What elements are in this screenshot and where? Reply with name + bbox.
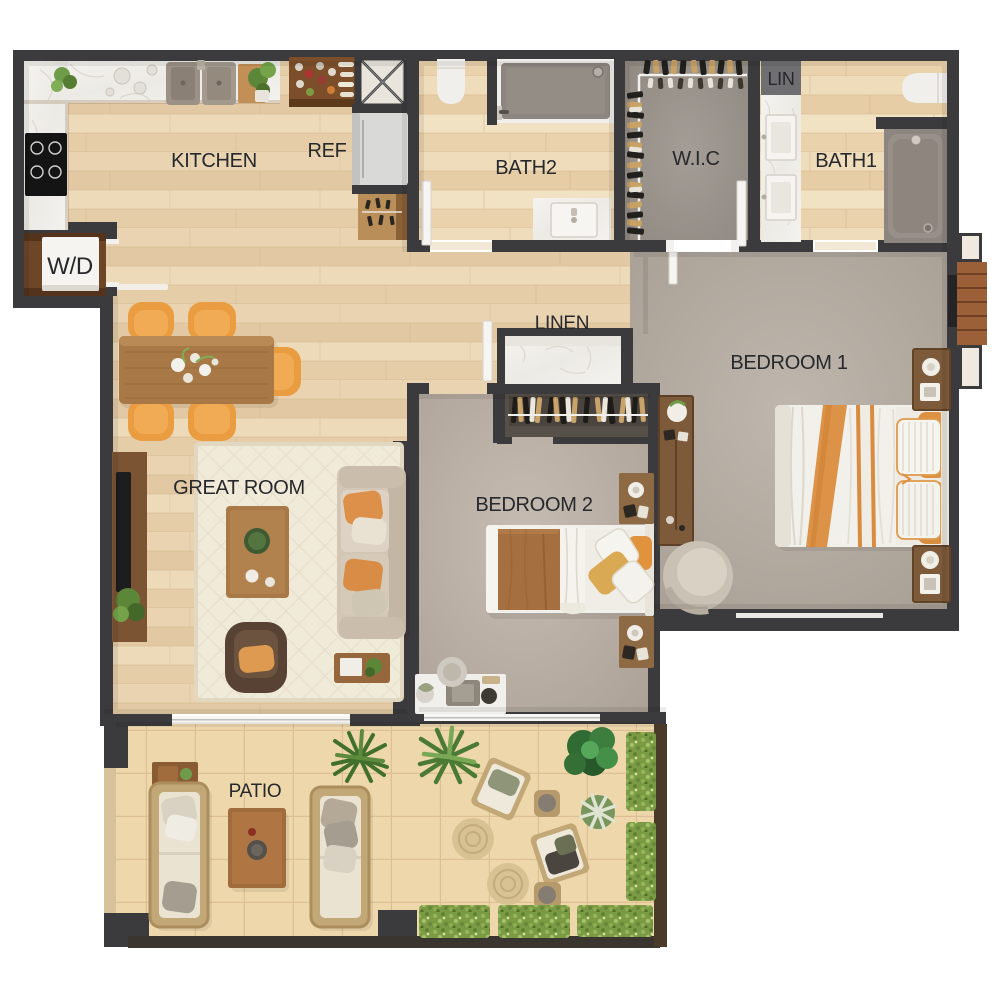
svg-text:BEDROOM 1: BEDROOM 1 [730, 352, 847, 374]
svg-text:BATH2: BATH2 [495, 157, 557, 179]
svg-text:GREAT ROOM: GREAT ROOM [173, 477, 305, 499]
svg-text:PATIO: PATIO [229, 781, 282, 802]
svg-text:W/D: W/D [47, 253, 93, 280]
svg-text:LINEN: LINEN [535, 313, 589, 334]
svg-text:REF: REF [307, 140, 346, 162]
svg-text:KITCHEN: KITCHEN [171, 150, 257, 172]
svg-text:BATH1: BATH1 [815, 150, 877, 172]
svg-text:BEDROOM 2: BEDROOM 2 [475, 494, 592, 516]
svg-text:W.I.C: W.I.C [672, 148, 719, 170]
svg-text:LIN: LIN [767, 69, 794, 89]
